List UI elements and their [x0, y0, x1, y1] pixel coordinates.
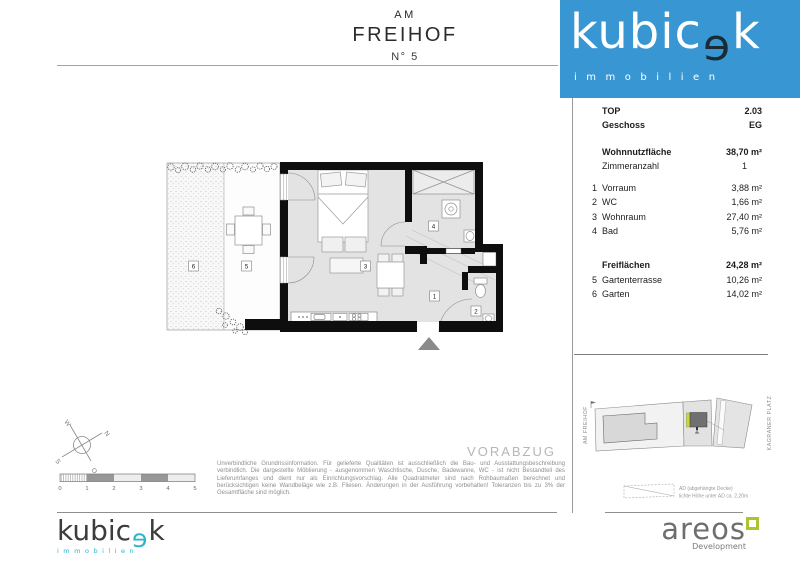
room-label-wc: 2 [474, 309, 478, 316]
vorabzug-watermark: VORABZUG [440, 444, 556, 459]
row-room-wc: 2WC1,66 m² [590, 195, 762, 209]
site-plan-parcels [595, 398, 752, 451]
kubicek-subtitle: immobilien [574, 72, 725, 83]
panel-vertical-divider [572, 98, 573, 513]
kubicek-footer-subtitle: immobilien [57, 547, 165, 555]
compass-west-label: W [62, 419, 72, 429]
unit-details-panel: TOP2.03 GeschossEG Wohnnutzfläche38,70 m… [590, 104, 762, 301]
row-freiflaechen: Freiflächen24,28 m² [590, 258, 762, 272]
kubicek-logo-footer: kubicɘk immobilien [57, 517, 165, 555]
row-gartenterrasse: 5Gartenterrasse10,26 m² [590, 273, 762, 287]
room-label-gartenterrasse: 5 [245, 264, 249, 271]
geschoss-label: Geschoss [602, 118, 749, 132]
areos-wordmark: areos [661, 514, 746, 545]
garden-area [168, 164, 225, 330]
disclaimer-text: Unverbindliche Grundrissinformation. Für… [217, 461, 565, 497]
compass-rose [62, 425, 102, 461]
svg-text:4: 4 [166, 486, 170, 492]
svg-text:0: 0 [58, 486, 61, 492]
project-title-number: N° 5 [330, 51, 480, 63]
project-title-name: FREIHOF [330, 24, 480, 47]
room-label-bad: 4 [432, 224, 436, 231]
floor-plan: 6 5 3 4 1 2 [150, 140, 510, 360]
geschoss-value: EG [749, 118, 762, 132]
room-label-wohnraum: 3 [364, 264, 368, 271]
svg-text:5: 5 [193, 486, 196, 492]
row-room-vorraum: 1Vorraum3,88 m² [590, 181, 762, 195]
bed [318, 170, 368, 252]
kubicek-word-pre: kubic [570, 4, 702, 60]
row-garten: 6Garten14,02 m² [590, 287, 762, 301]
coffee-table [330, 258, 363, 273]
ad-legend-line2: lichte Höhe unter AD ca. 2,20m [679, 494, 748, 500]
ad-legend: AD (abgehängte Decke) lichte Höhe unter … [622, 482, 777, 506]
row-room-wohnraum: 3Wohnraum27,40 m² [590, 210, 762, 224]
row-wohnnutzflaeche: Wohnnutzfläche38,70 m² [590, 145, 762, 159]
header-rule [57, 65, 558, 66]
kubicek-word-post: k [732, 4, 761, 60]
shaft-niche [483, 253, 496, 267]
site-plan-flag-marker [591, 401, 596, 408]
compass-labels: N W S O [53, 419, 111, 475]
site-street-label-right: KAGRANER PLATZ [767, 396, 773, 451]
panel-horizontal-divider [574, 354, 768, 355]
compass-south-label: S [53, 458, 62, 466]
row-geschoss: GeschossEG [590, 118, 762, 132]
site-street-label-left: AM FREIHOF [583, 406, 589, 444]
kubicek-footer-wordmark: kubicɘk [57, 517, 165, 546]
project-title-prefix: AM [330, 9, 480, 21]
zimmeranzahl-value: 1 [742, 159, 762, 173]
wohnnutzflaeche-value: 38,70 m² [726, 145, 762, 159]
ad-legend-line1: AD (abgehängte Decke) [679, 486, 733, 492]
footer-rule-left [57, 512, 557, 513]
row-top: TOP2.03 [590, 104, 762, 118]
row-zimmeranzahl: Zimmeranzahl1 [590, 159, 762, 173]
row-room-bad: 4Bad5,76 m² [590, 224, 762, 238]
compass-north-label: N [102, 430, 111, 438]
entrance-arrow [418, 337, 440, 350]
top-label: TOP [602, 104, 744, 118]
scale-bar-segments [60, 474, 195, 482]
scale-bar: 0 1 2 3 4 5 [58, 472, 206, 496]
scale-bar-ticks: 0 1 2 3 4 5 [58, 486, 196, 492]
kubicek-wordmark: kubicɘk [570, 7, 761, 59]
freiflaechen-label: Freiflächen [602, 258, 726, 272]
wohnnutzflaeche-label: Wohnnutzfläche [602, 145, 726, 159]
kubicek-footer-reversed-e: ɘ [132, 525, 147, 553]
room-label-garten: 6 [192, 264, 196, 271]
wall-niche [446, 249, 461, 254]
kubicek-reversed-e: ɘ [703, 21, 731, 71]
svg-text:2: 2 [112, 486, 115, 492]
kitchen-counter [291, 312, 377, 322]
freiflaechen-value: 24,28 m² [726, 258, 762, 272]
compass: N W S O [48, 406, 120, 478]
svg-text:1: 1 [85, 486, 88, 492]
top-value: 2.03 [744, 104, 762, 118]
areos-square-icon [746, 517, 759, 530]
svg-text:3: 3 [139, 486, 142, 492]
site-plan: AM FREIHOF KAGRANER PLATZ [583, 383, 775, 467]
project-title: AM FREIHOF N° 5 [330, 9, 480, 63]
room-label-vorraum: 1 [433, 294, 437, 301]
areos-logo: areos Development [655, 514, 759, 551]
zimmeranzahl-label: Zimmeranzahl [602, 159, 742, 173]
kubicek-logo-header: kubicɘk immobilien [560, 0, 800, 98]
